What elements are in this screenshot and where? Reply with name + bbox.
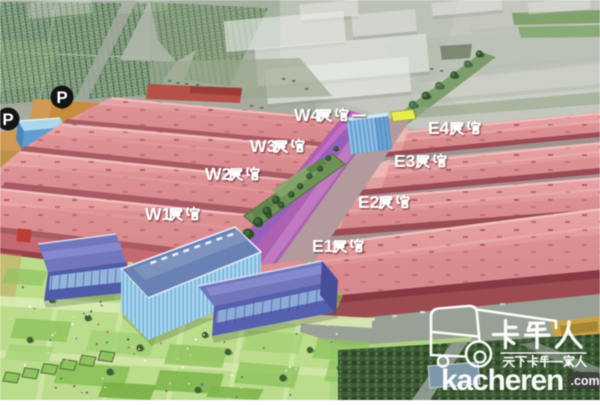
svg-text:W1: W1 [145,204,172,224]
svg-text:P: P [2,110,13,129]
svg-text:.com: .com [571,374,600,388]
svg-text:W4: W4 [294,105,321,125]
svg-text:P: P [56,88,67,107]
svg-text:E1: E1 [312,236,334,256]
svg-text:E4: E4 [428,118,450,138]
svg-text:W2: W2 [205,164,232,184]
svg-text:E2: E2 [358,192,380,212]
svg-text:E3: E3 [394,151,416,171]
svg-text:kacheren: kacheren [441,364,563,397]
svg-text:W3: W3 [250,136,277,156]
